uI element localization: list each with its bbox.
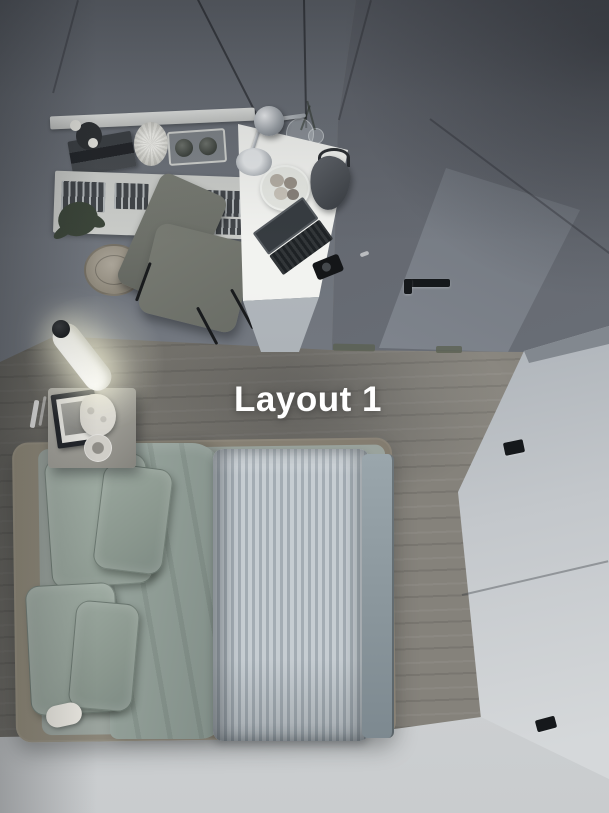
bed-edge-runner — [362, 454, 394, 738]
fruit — [270, 174, 284, 187]
planter-pot — [198, 137, 217, 156]
fruit — [274, 187, 288, 200]
bedroom-top-view-render: Layout 1 — [0, 0, 609, 813]
floor-lamp-cap — [52, 320, 70, 338]
round-speaker — [84, 434, 112, 462]
fruit — [287, 189, 299, 200]
monkey-figurine-face — [88, 138, 98, 148]
camera-lens — [321, 261, 333, 273]
floor-threshold-left — [333, 344, 375, 352]
planter-rack — [167, 128, 227, 166]
floor-threshold-right — [436, 346, 462, 353]
desk-lamp-head — [254, 106, 284, 136]
pillow-small-bottom — [67, 599, 140, 712]
pleated-table-lamp — [134, 122, 168, 166]
striped-duvet — [213, 449, 369, 741]
pillow-small-top — [92, 462, 174, 576]
door-handle-hinge — [404, 279, 412, 294]
door-handle — [406, 279, 450, 287]
fruit — [284, 177, 297, 189]
layout-caption: Layout 1 — [158, 380, 458, 420]
cubby-slot-books — [114, 183, 149, 210]
planter-pot — [174, 138, 193, 157]
monkey-figurine-ear — [70, 120, 81, 131]
